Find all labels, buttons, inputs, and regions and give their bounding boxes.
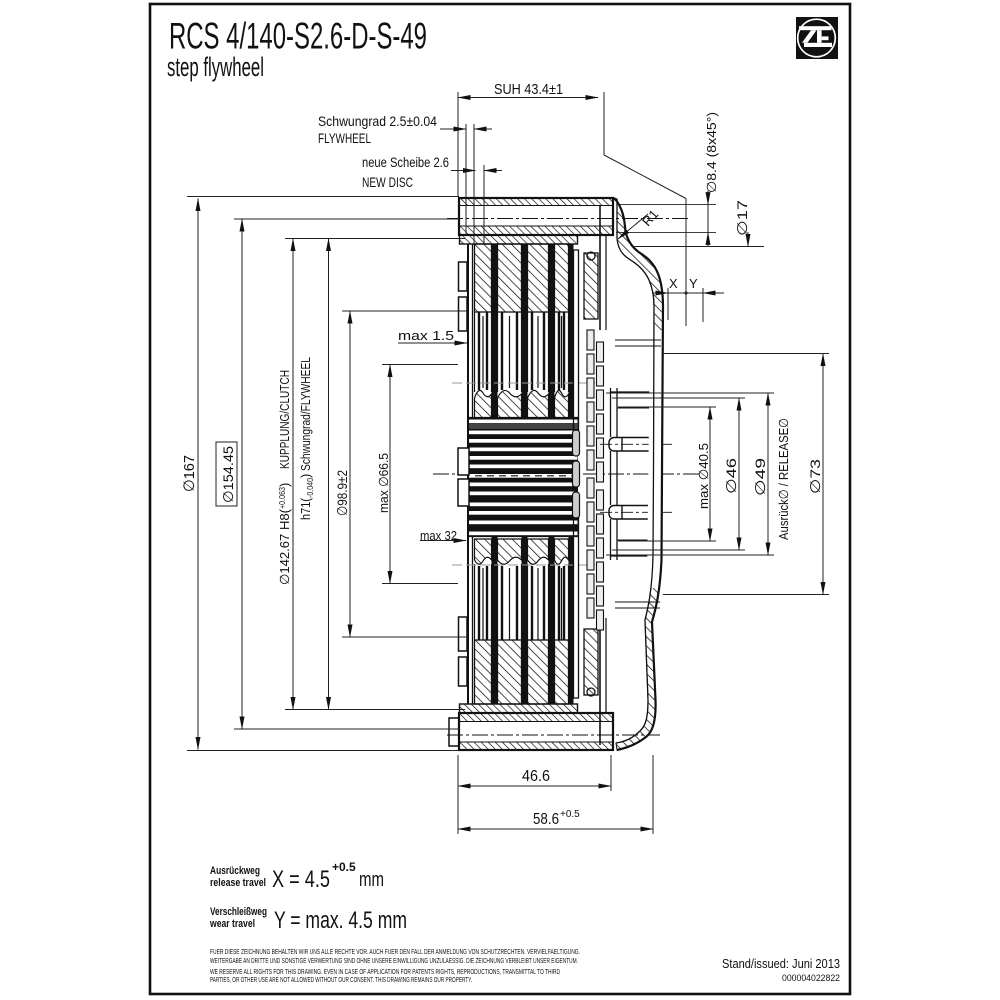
svg-text:neue Scheibe 2.6: neue Scheibe 2.6 bbox=[362, 154, 449, 170]
svg-text:max ∅40.5: max ∅40.5 bbox=[696, 443, 711, 509]
svg-text:Stand/issued: Juni 2013: Stand/issued: Juni 2013 bbox=[722, 956, 840, 971]
svg-text:step flywheel: step flywheel bbox=[167, 52, 264, 82]
svg-text:release travel: release travel bbox=[210, 877, 266, 889]
svg-text:∅154.45: ∅154.45 bbox=[220, 446, 236, 503]
svg-text:+0.5: +0.5 bbox=[332, 860, 356, 874]
svg-text:∅98.9±2: ∅98.9±2 bbox=[334, 470, 350, 516]
svg-text:RCS 4/140-S2.6-D-S-49: RCS 4/140-S2.6-D-S-49 bbox=[169, 16, 427, 57]
svg-text:Y: Y bbox=[689, 276, 698, 291]
svg-text:max 1.5: max 1.5 bbox=[398, 328, 454, 343]
svg-text:X = 4.5: X = 4.5 bbox=[272, 866, 330, 893]
svg-text:46.6: 46.6 bbox=[522, 768, 550, 785]
svg-text:SUH 43.4±1: SUH 43.4±1 bbox=[494, 81, 563, 98]
svg-text:FUER DIESE ZEICHNUNG BEHALTEN: FUER DIESE ZEICHNUNG BEHALTEN WIR UNS AL… bbox=[210, 949, 580, 956]
svg-text:max ∅66.5: max ∅66.5 bbox=[376, 453, 391, 513]
svg-text:Schwungrad/FLYWHEEL: Schwungrad/FLYWHEEL bbox=[298, 357, 313, 471]
svg-text:Ausrückweg: Ausrückweg bbox=[210, 865, 260, 877]
svg-text:Y = max. 4.5 mm: Y = max. 4.5 mm bbox=[274, 907, 407, 934]
svg-text:KUPPLUNG/CLUTCH: KUPPLUNG/CLUTCH bbox=[277, 370, 292, 469]
svg-text:+0.5: +0.5 bbox=[560, 809, 580, 820]
svg-text:∅8.4 (8x45°): ∅8.4 (8x45°) bbox=[704, 112, 719, 193]
svg-text:∅167: ∅167 bbox=[181, 455, 198, 492]
svg-text:FLYWHEEL: FLYWHEEL bbox=[318, 130, 371, 146]
svg-text:max 32: max 32 bbox=[420, 528, 457, 543]
svg-text:Schwungrad 2.5±0.04: Schwungrad 2.5±0.04 bbox=[318, 113, 437, 129]
svg-text:∅17: ∅17 bbox=[734, 200, 750, 236]
svg-text:WEITERGABE AN DRITTE UND SONST: WEITERGABE AN DRITTE UND SONSTIGE VERWER… bbox=[210, 958, 578, 965]
svg-text:000004022822: 000004022822 bbox=[782, 973, 840, 983]
svg-text:X: X bbox=[669, 276, 678, 291]
svg-text:wear travel: wear travel bbox=[209, 918, 255, 930]
svg-text:∅49: ∅49 bbox=[752, 458, 768, 496]
svg-text:∅46: ∅46 bbox=[723, 458, 739, 494]
svg-text:Verschleißweg: Verschleißweg bbox=[210, 906, 267, 918]
svg-text:WE RESERVE ALL RIGHTS FOR THIS: WE RESERVE ALL RIGHTS FOR THIS DRAWING. … bbox=[210, 969, 560, 976]
svg-text:58.6: 58.6 bbox=[533, 811, 559, 828]
svg-text:Ausrück∅ / RELEASE∅: Ausrück∅ / RELEASE∅ bbox=[776, 418, 791, 540]
svg-text:NEW DISC: NEW DISC bbox=[362, 174, 413, 190]
svg-text:mm: mm bbox=[359, 869, 384, 891]
svg-text:∅73: ∅73 bbox=[807, 459, 823, 494]
svg-text:PARTIES, OR OTHER USE ARE NOT: PARTIES, OR OTHER USE ARE NOT ALLOWED WI… bbox=[210, 977, 472, 984]
